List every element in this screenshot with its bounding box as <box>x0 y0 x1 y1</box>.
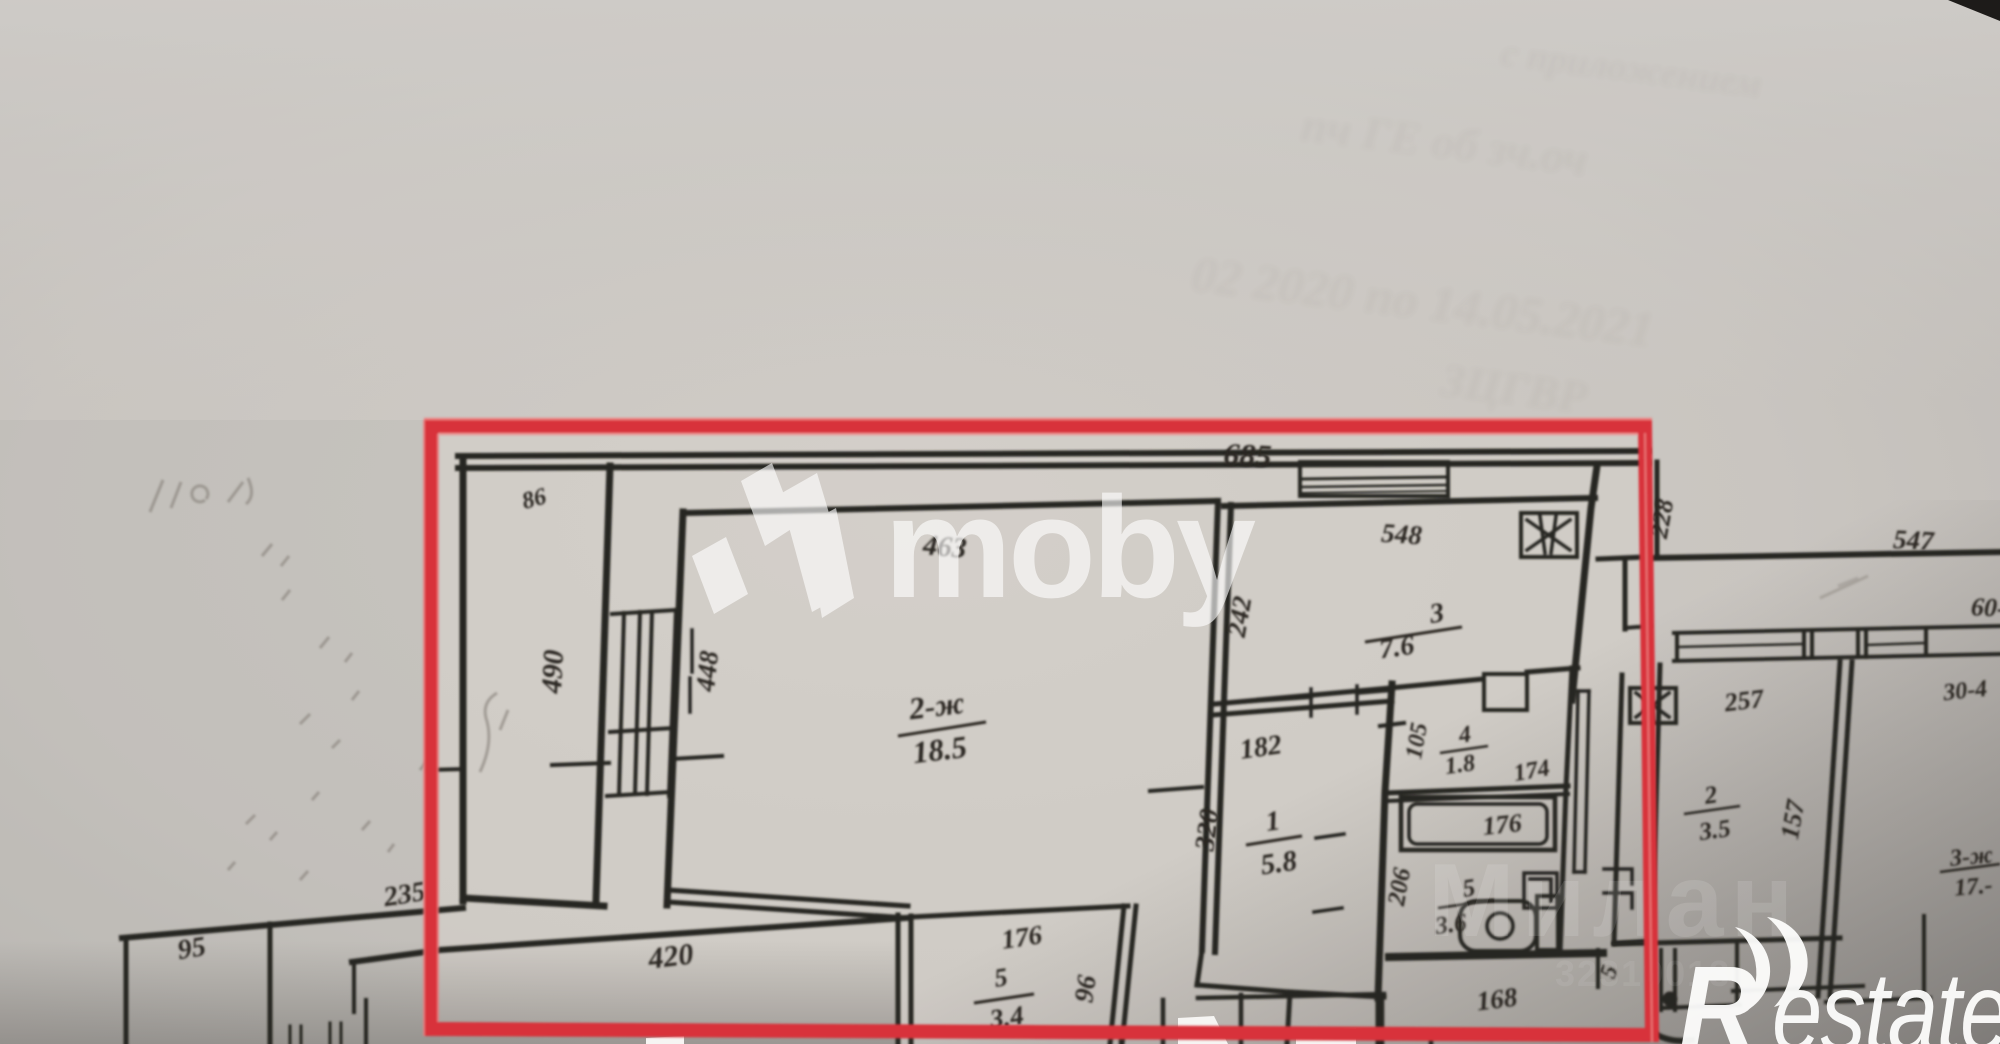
svg-text:320: 320 <box>1189 807 1226 854</box>
svg-text:95: 95 <box>175 931 208 966</box>
svg-text:182: 182 <box>1238 729 1284 766</box>
svg-text:30-4: 30-4 <box>1941 676 1988 707</box>
svg-text:18.5: 18.5 <box>911 729 969 770</box>
svg-text:176: 176 <box>1000 919 1045 954</box>
svg-text:490: 490 <box>536 649 570 695</box>
svg-text:2-ж: 2-ж <box>906 685 966 727</box>
svg-text:moby: moby <box>884 467 1256 628</box>
svg-text:448: 448 <box>690 649 724 694</box>
svg-text:420: 420 <box>646 937 696 975</box>
svg-text:168: 168 <box>1475 982 1519 1017</box>
svg-text:96: 96 <box>1068 973 1102 1004</box>
svg-text:1.8: 1.8 <box>1443 750 1476 780</box>
svg-text:5.8: 5.8 <box>1259 845 1300 882</box>
svg-text:548: 548 <box>1380 518 1423 551</box>
svg-text:estate: estate <box>1772 948 2000 1044</box>
svg-text:60-: 60- <box>1970 592 2000 623</box>
svg-text:3.5: 3.5 <box>1697 815 1733 846</box>
svg-text:176: 176 <box>1481 808 1523 841</box>
svg-text:547: 547 <box>1892 524 1936 556</box>
svg-text:7.6: 7.6 <box>1377 630 1416 666</box>
svg-text:257: 257 <box>1722 684 1766 718</box>
svg-text:R: R <box>1679 942 1758 1044</box>
svg-text:17.-: 17.- <box>1953 872 1993 901</box>
